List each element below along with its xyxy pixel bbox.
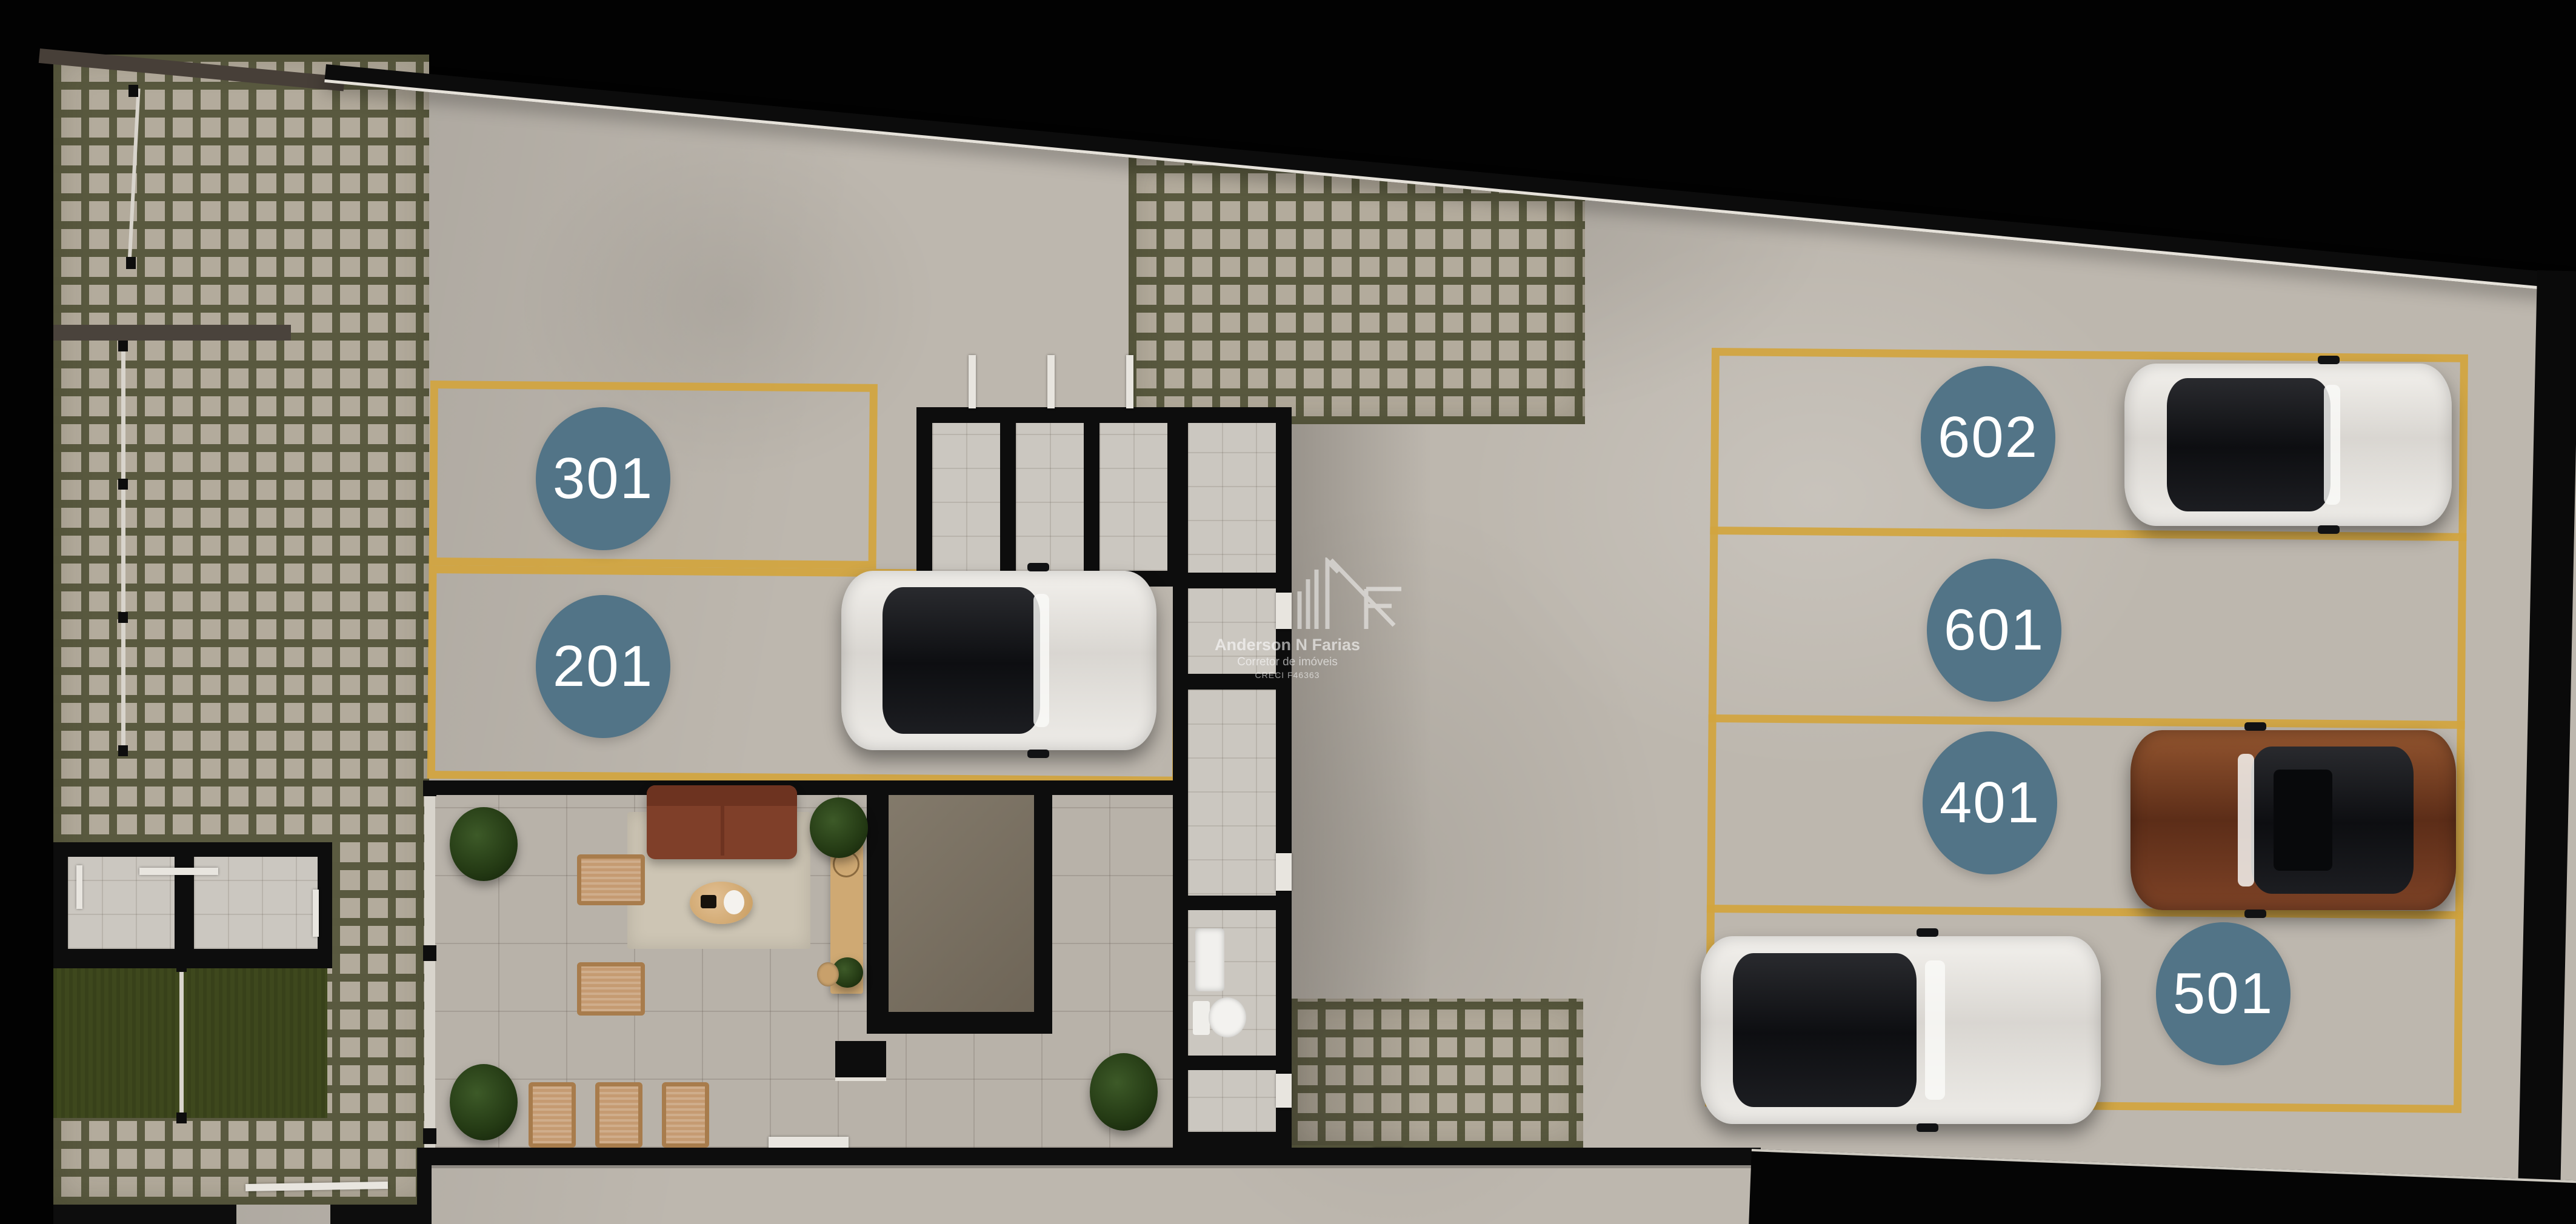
watermark-license: CRECI F46363 bbox=[1166, 670, 1409, 680]
sofa-cushion-split bbox=[721, 806, 724, 856]
door-leaf bbox=[313, 890, 319, 937]
shadow bbox=[1292, 424, 1492, 1145]
door-leaf bbox=[1126, 355, 1133, 408]
bottom-wall bbox=[417, 1148, 1761, 1168]
car-mirror bbox=[2244, 910, 2266, 918]
wall-stub bbox=[835, 1041, 886, 1081]
car-mirror bbox=[1917, 1123, 1938, 1132]
basket bbox=[817, 962, 839, 986]
potted-plant bbox=[810, 797, 868, 858]
storage-stall-floor bbox=[932, 423, 1000, 571]
car-glass bbox=[1733, 953, 1917, 1107]
wall-post bbox=[423, 780, 436, 796]
spot-label: 501 bbox=[2173, 960, 2274, 1027]
courtyard-mid-wall bbox=[53, 325, 291, 341]
spot-badge-602: 602 bbox=[1921, 366, 2055, 509]
fence-post bbox=[118, 479, 128, 490]
lobby-top-wall bbox=[430, 780, 1173, 795]
car-mirror bbox=[2318, 525, 2340, 534]
car-windshield bbox=[1925, 960, 1945, 1099]
lawn-gate bbox=[179, 965, 184, 1121]
table-decor bbox=[724, 890, 744, 914]
plant bbox=[450, 807, 518, 881]
storage-stall-floor bbox=[1099, 423, 1167, 571]
plant bbox=[1090, 1053, 1158, 1131]
door-opening bbox=[1276, 1074, 1292, 1108]
bathroom-sink bbox=[1195, 928, 1224, 991]
armchair bbox=[577, 962, 645, 1016]
floor-plan-render: 301 201 602 601 401 501 Anderson N Faria… bbox=[0, 0, 2576, 1224]
lawn-strip bbox=[53, 968, 327, 1118]
fence-post bbox=[118, 612, 128, 623]
toilet-tank bbox=[1193, 1001, 1210, 1035]
sofa bbox=[647, 785, 797, 859]
door-leaf bbox=[139, 868, 218, 875]
plant bbox=[450, 1064, 518, 1140]
door-leaf bbox=[76, 865, 82, 909]
car-glass bbox=[883, 587, 1040, 734]
car-mirror bbox=[1917, 928, 1938, 937]
chair bbox=[595, 1082, 642, 1148]
stair-core bbox=[867, 795, 1052, 1034]
fence-post bbox=[118, 341, 128, 351]
car-white-sedan-spot-501 bbox=[1701, 936, 2101, 1124]
wall-connector bbox=[417, 1148, 432, 1224]
perimeter-wall bbox=[53, 1205, 236, 1224]
car-windshield bbox=[1033, 594, 1049, 727]
spot-label: 201 bbox=[553, 633, 653, 700]
spot-badge-401: 401 bbox=[1923, 731, 2057, 874]
door-leaf bbox=[1047, 355, 1055, 408]
car-mirror bbox=[1027, 750, 1049, 758]
armchair bbox=[577, 854, 645, 905]
car-white-hatchback-spot-201 bbox=[841, 571, 1156, 750]
spot-label: 301 bbox=[553, 445, 653, 512]
wall-post bbox=[423, 1128, 436, 1144]
lobby-glass-wall bbox=[424, 780, 435, 1148]
fence-post bbox=[118, 745, 128, 756]
wall-post bbox=[423, 945, 436, 961]
watermark-role: Corretor de imóveis bbox=[1166, 656, 1409, 669]
car-brown-suv-spot-401 bbox=[2131, 730, 2456, 910]
chair bbox=[662, 1082, 709, 1148]
car-white-hatchback-spot-602 bbox=[2124, 364, 2452, 526]
spot-badge-201: 201 bbox=[536, 595, 670, 738]
car-mirror bbox=[1027, 563, 1049, 571]
stair-core-floor bbox=[889, 795, 1034, 1012]
car-mirror bbox=[2318, 356, 2340, 364]
gate-post bbox=[126, 257, 136, 269]
partition-wall bbox=[1173, 1056, 1292, 1070]
side-fence bbox=[121, 341, 125, 756]
spot-badge-301: 301 bbox=[536, 407, 670, 550]
gate-post bbox=[176, 1113, 187, 1123]
spot-label: 601 bbox=[1944, 597, 2044, 664]
spot-label: 602 bbox=[1938, 404, 2038, 471]
spot-label: 401 bbox=[1940, 770, 2040, 836]
gate-post bbox=[128, 85, 138, 97]
car-windshield bbox=[2324, 385, 2340, 505]
door-opening bbox=[1276, 853, 1292, 891]
partition-wall bbox=[1173, 896, 1292, 910]
spot-badge-601: 601 bbox=[1927, 559, 2061, 702]
car-sunroof bbox=[2274, 770, 2332, 870]
car-windshield bbox=[2238, 754, 2254, 887]
realtor-watermark: Anderson N Farias Corretor de imóveis CR… bbox=[1166, 557, 1409, 680]
door-leaf bbox=[969, 355, 976, 408]
car-mirror bbox=[2244, 722, 2266, 731]
toilet-bowl bbox=[1209, 997, 1246, 1037]
sofa-back bbox=[647, 785, 797, 806]
chair bbox=[529, 1082, 576, 1148]
perimeter-wall bbox=[330, 1205, 429, 1224]
anf-monogram-logo bbox=[1293, 557, 1403, 629]
coffee-table bbox=[690, 882, 753, 924]
table-tray bbox=[701, 895, 716, 908]
storage-stall-floor bbox=[1016, 423, 1084, 571]
watermark-name: Anderson N Farias bbox=[1166, 636, 1409, 654]
car-glass bbox=[2167, 378, 2331, 511]
spot-badge-501: 501 bbox=[2156, 922, 2291, 1065]
